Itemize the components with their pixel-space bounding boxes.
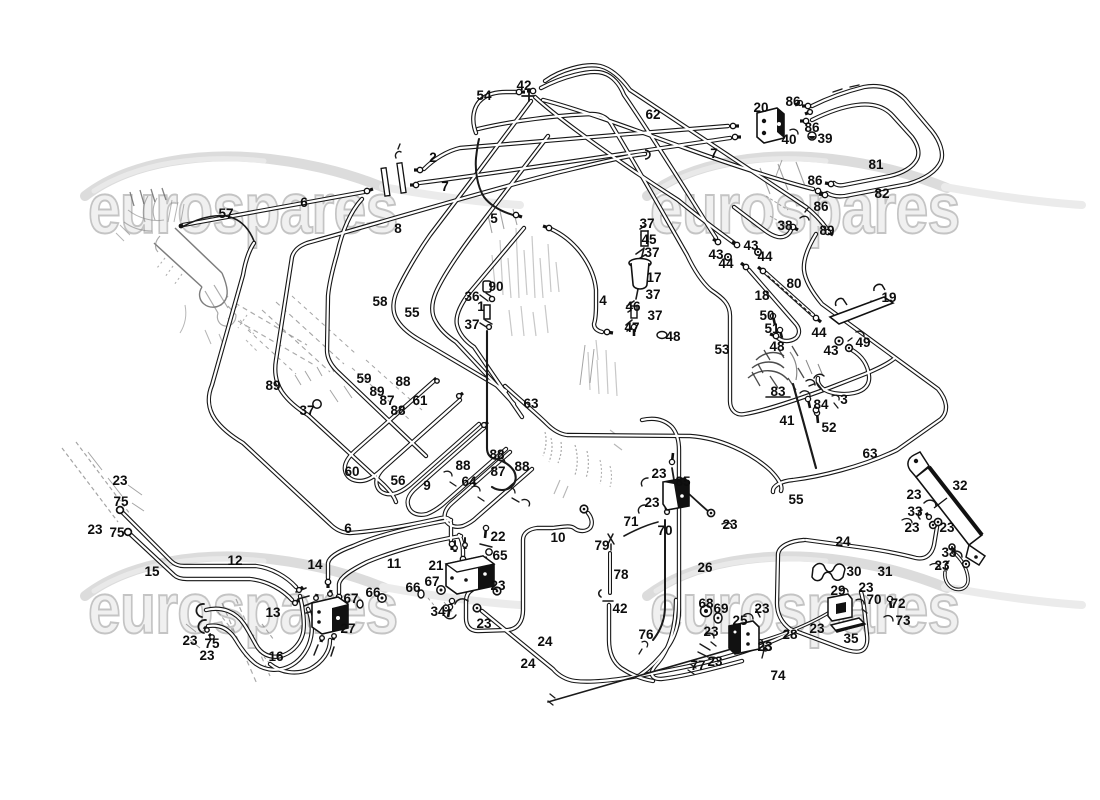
svg-text:5: 5 <box>490 211 498 226</box>
svg-text:84: 84 <box>813 397 829 412</box>
svg-text:37: 37 <box>639 216 654 231</box>
svg-text:23: 23 <box>722 517 738 532</box>
svg-text:37: 37 <box>647 308 662 323</box>
svg-text:68: 68 <box>698 596 714 611</box>
svg-text:33: 33 <box>907 504 923 519</box>
svg-text:9: 9 <box>423 478 431 493</box>
svg-text:15: 15 <box>144 564 160 579</box>
svg-text:29: 29 <box>830 583 845 598</box>
svg-text:82: 82 <box>874 186 889 201</box>
svg-text:73: 73 <box>895 613 911 628</box>
svg-text:66: 66 <box>365 585 381 600</box>
svg-text:74: 74 <box>770 668 786 683</box>
svg-text:55: 55 <box>404 305 420 320</box>
svg-text:79: 79 <box>594 538 609 553</box>
svg-text:23: 23 <box>182 633 198 648</box>
svg-text:6: 6 <box>344 521 352 536</box>
svg-text:48: 48 <box>665 329 681 344</box>
svg-text:12: 12 <box>227 553 242 568</box>
svg-text:4: 4 <box>599 293 607 308</box>
svg-text:48: 48 <box>769 339 785 354</box>
svg-text:14: 14 <box>307 557 323 572</box>
svg-text:34: 34 <box>430 604 446 619</box>
svg-text:88: 88 <box>489 447 505 462</box>
svg-text:60: 60 <box>344 464 359 479</box>
svg-text:87: 87 <box>490 464 505 479</box>
svg-text:19: 19 <box>881 290 896 305</box>
svg-text:31: 31 <box>877 564 893 579</box>
svg-text:7: 7 <box>710 146 718 161</box>
svg-text:85: 85 <box>675 474 691 489</box>
svg-text:80: 80 <box>786 276 801 291</box>
svg-text:90: 90 <box>488 279 503 294</box>
svg-text:38: 38 <box>777 218 793 233</box>
svg-text:23: 23 <box>707 654 723 669</box>
svg-text:64: 64 <box>461 474 477 489</box>
svg-text:25: 25 <box>732 613 748 628</box>
svg-text:46: 46 <box>625 299 641 314</box>
svg-text:23: 23 <box>906 487 922 502</box>
svg-text:32: 32 <box>952 478 967 493</box>
svg-text:35: 35 <box>843 631 859 646</box>
svg-text:76: 76 <box>638 627 654 642</box>
svg-text:75: 75 <box>109 525 125 540</box>
svg-text:52: 52 <box>821 420 836 435</box>
svg-text:86: 86 <box>813 199 829 214</box>
svg-text:70: 70 <box>657 523 672 538</box>
svg-text:56: 56 <box>390 473 406 488</box>
svg-text:27: 27 <box>340 621 355 636</box>
svg-text:2: 2 <box>429 150 437 165</box>
svg-text:1: 1 <box>477 299 485 314</box>
svg-text:11: 11 <box>387 556 402 571</box>
svg-text:23: 23 <box>754 601 770 616</box>
svg-text:83: 83 <box>770 384 786 399</box>
svg-text:43: 43 <box>823 343 839 358</box>
svg-text:23: 23 <box>757 639 773 654</box>
svg-text:67: 67 <box>343 591 358 606</box>
svg-text:89: 89 <box>819 223 834 238</box>
svg-text:69: 69 <box>713 601 728 616</box>
svg-text:24: 24 <box>520 656 536 671</box>
svg-text:81: 81 <box>868 157 884 172</box>
svg-text:23: 23 <box>934 558 950 573</box>
svg-text:61: 61 <box>412 393 428 408</box>
svg-text:88: 88 <box>455 458 471 473</box>
svg-text:23: 23 <box>490 578 506 593</box>
svg-text:23: 23 <box>87 522 103 537</box>
svg-text:16: 16 <box>268 649 284 664</box>
svg-text:24: 24 <box>537 634 553 649</box>
svg-text:40: 40 <box>781 132 796 147</box>
svg-text:20: 20 <box>753 100 768 115</box>
svg-text:49: 49 <box>855 335 870 350</box>
svg-text:66: 66 <box>405 580 421 595</box>
svg-text:24: 24 <box>835 534 851 549</box>
svg-text:23: 23 <box>904 520 920 535</box>
svg-text:47: 47 <box>624 320 639 335</box>
svg-text:18: 18 <box>754 288 770 303</box>
svg-text:41: 41 <box>779 413 795 428</box>
svg-text:53: 53 <box>714 342 730 357</box>
svg-text:86: 86 <box>807 173 823 188</box>
svg-text:54: 54 <box>476 88 492 103</box>
svg-text:21: 21 <box>428 558 444 573</box>
svg-text:23: 23 <box>651 466 667 481</box>
svg-text:65: 65 <box>492 548 508 563</box>
svg-text:37: 37 <box>644 245 659 260</box>
svg-text:58: 58 <box>372 294 388 309</box>
svg-text:86: 86 <box>785 94 801 109</box>
svg-text:88: 88 <box>390 403 406 418</box>
svg-text:7: 7 <box>441 179 449 194</box>
svg-text:42: 42 <box>516 78 531 93</box>
svg-text:70: 70 <box>866 592 881 607</box>
svg-text:23: 23 <box>112 473 128 488</box>
svg-text:77: 77 <box>690 658 705 673</box>
svg-text:71: 71 <box>623 514 639 529</box>
svg-text:72: 72 <box>890 596 905 611</box>
svg-text:78: 78 <box>613 567 629 582</box>
svg-text:23: 23 <box>644 495 660 510</box>
svg-text:23: 23 <box>199 648 215 663</box>
svg-text:63: 63 <box>862 446 878 461</box>
svg-text:88: 88 <box>514 459 530 474</box>
svg-text:13: 13 <box>265 605 281 620</box>
svg-text:39: 39 <box>817 131 832 146</box>
svg-text:3: 3 <box>840 392 848 407</box>
svg-text:23: 23 <box>703 624 719 639</box>
svg-text:10: 10 <box>550 530 565 545</box>
svg-text:eurospares: eurospares <box>88 169 397 248</box>
svg-text:23: 23 <box>939 520 955 535</box>
svg-text:55: 55 <box>788 492 804 507</box>
svg-text:37: 37 <box>464 317 479 332</box>
svg-text:6: 6 <box>300 195 308 210</box>
svg-text:30: 30 <box>846 564 861 579</box>
svg-text:37: 37 <box>645 287 660 302</box>
svg-text:23: 23 <box>476 616 492 631</box>
svg-text:63: 63 <box>523 396 539 411</box>
svg-text:42: 42 <box>612 601 627 616</box>
svg-text:37: 37 <box>299 403 314 418</box>
svg-text:26: 26 <box>697 560 713 575</box>
svg-text:23: 23 <box>809 621 825 636</box>
svg-text:44: 44 <box>718 256 734 271</box>
svg-text:17: 17 <box>646 270 661 285</box>
svg-text:62: 62 <box>645 107 660 122</box>
svg-text:51: 51 <box>764 321 780 336</box>
svg-text:44: 44 <box>757 249 773 264</box>
svg-text:57: 57 <box>218 206 233 221</box>
svg-text:75: 75 <box>113 494 129 509</box>
svg-text:67: 67 <box>424 574 439 589</box>
svg-text:89: 89 <box>265 378 280 393</box>
svg-text:28: 28 <box>782 627 798 642</box>
svg-text:22: 22 <box>490 529 505 544</box>
svg-text:88: 88 <box>395 374 411 389</box>
svg-text:44: 44 <box>811 325 827 340</box>
svg-text:8: 8 <box>394 221 402 236</box>
